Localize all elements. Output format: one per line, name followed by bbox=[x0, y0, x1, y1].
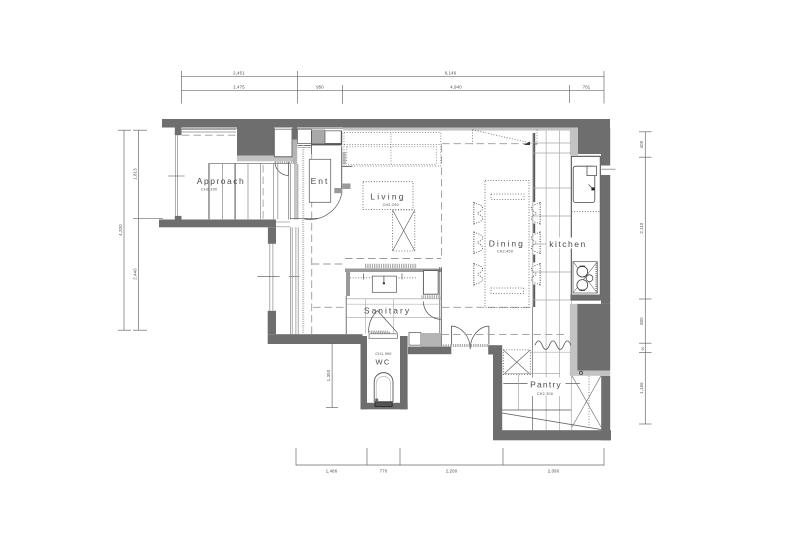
svg-text:2,090: 2,090 bbox=[548, 469, 560, 474]
svg-text:2,110: 2,110 bbox=[639, 222, 644, 234]
svg-text:Ent: Ent bbox=[311, 176, 330, 186]
svg-text:770: 770 bbox=[380, 469, 388, 474]
svg-text:Approach: Approach bbox=[197, 176, 245, 186]
svg-text:1,486: 1,486 bbox=[326, 469, 338, 474]
svg-text:2,440: 2,440 bbox=[133, 268, 138, 280]
svg-text:2,200: 2,200 bbox=[446, 469, 458, 474]
svg-text:2,451: 2,451 bbox=[233, 70, 245, 75]
svg-text:CH1,990: CH1,990 bbox=[375, 352, 391, 356]
svg-text:90: 90 bbox=[641, 347, 645, 351]
svg-text:6,146: 6,146 bbox=[445, 70, 457, 75]
svg-text:2,475: 2,475 bbox=[233, 84, 245, 89]
svg-text:Sanitary: Sanitary bbox=[364, 305, 411, 315]
svg-text:800: 800 bbox=[639, 317, 644, 325]
svg-text:WC: WC bbox=[375, 358, 390, 367]
svg-text:4,940: 4,940 bbox=[450, 84, 462, 89]
svg-text:CH2,290: CH2,290 bbox=[383, 203, 399, 207]
svg-text:kitchen: kitchen bbox=[549, 239, 586, 249]
svg-text:701: 701 bbox=[583, 84, 591, 89]
svg-text:400: 400 bbox=[639, 140, 644, 148]
svg-text:Living: Living bbox=[370, 192, 405, 202]
svg-text:1,166: 1,166 bbox=[639, 382, 644, 394]
svg-text:4,200: 4,200 bbox=[118, 224, 123, 236]
svg-text:1,300: 1,300 bbox=[326, 369, 331, 381]
svg-text:1,813: 1,813 bbox=[133, 168, 138, 180]
svg-text:CH2,450: CH2,450 bbox=[497, 250, 513, 254]
svg-text:CH2,300: CH2,300 bbox=[201, 188, 217, 192]
svg-text:950: 950 bbox=[316, 84, 324, 89]
svg-text:CH2,300: CH2,300 bbox=[537, 392, 553, 396]
svg-text:Dining: Dining bbox=[489, 238, 525, 248]
svg-text:Pantry: Pantry bbox=[530, 379, 562, 389]
